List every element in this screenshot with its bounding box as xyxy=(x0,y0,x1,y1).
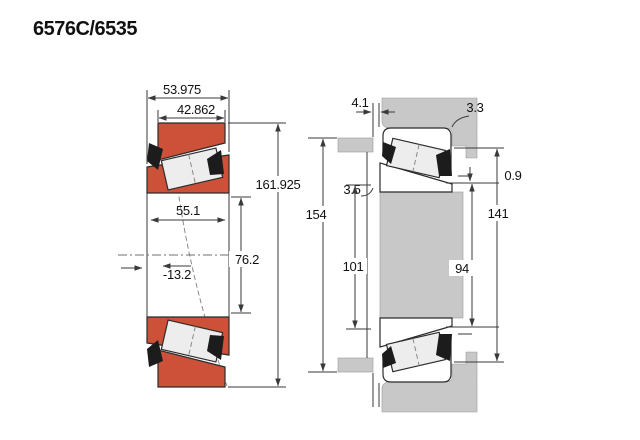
abutment-bar-top xyxy=(338,138,373,152)
page-title: 6576C/6535 xyxy=(33,18,137,41)
dimension-load-center: -13.2 xyxy=(163,266,191,282)
overall-width-label: 53.975 xyxy=(163,82,201,97)
load-center-label: -13.2 xyxy=(163,267,191,282)
bearing-datasheet-page: 6576C/6535 xyxy=(0,0,640,440)
callout-shaft-fillet: 3.5 xyxy=(343,182,373,197)
housing-fillet-label: 3.3 xyxy=(466,100,483,115)
dimension-backing-diameter: 101 xyxy=(339,185,371,329)
left-view-bearing-section: 53.975 42.862 161.925 55.1 xyxy=(118,82,306,387)
outer-diameter-label: 161.925 xyxy=(256,177,301,192)
axial-gap-label: 0.9 xyxy=(504,168,521,183)
housing-shoulder-label: 141 xyxy=(488,206,509,221)
shaft-shoulder-label: 94 xyxy=(455,261,469,276)
cup-width-label: 42.862 xyxy=(177,102,215,117)
dimension-bore-diameter: 76.2 xyxy=(229,197,265,313)
right-view-mounting-section: 4.1 3.3 3.5 0.9 xyxy=(301,95,522,412)
dimension-cone-width: 55.1 xyxy=(151,203,225,220)
backing-diameter-label: 101 xyxy=(343,259,364,274)
dimension-abutment-diameter: 154 xyxy=(301,138,337,372)
drawing-canvas: 53.975 42.862 161.925 55.1 xyxy=(0,0,640,440)
abutment-diameter-label: 154 xyxy=(306,207,327,222)
abutment-bar-bottom xyxy=(338,358,373,372)
shaft-fillet-label: 3.5 xyxy=(343,182,360,197)
cone-width-label: 55.1 xyxy=(176,203,200,218)
bore-diameter-label: 76.2 xyxy=(235,252,259,267)
shaft xyxy=(380,192,463,318)
face-standout-label: 4.1 xyxy=(351,95,368,110)
dimension-cup-width: 42.862 xyxy=(158,102,225,122)
